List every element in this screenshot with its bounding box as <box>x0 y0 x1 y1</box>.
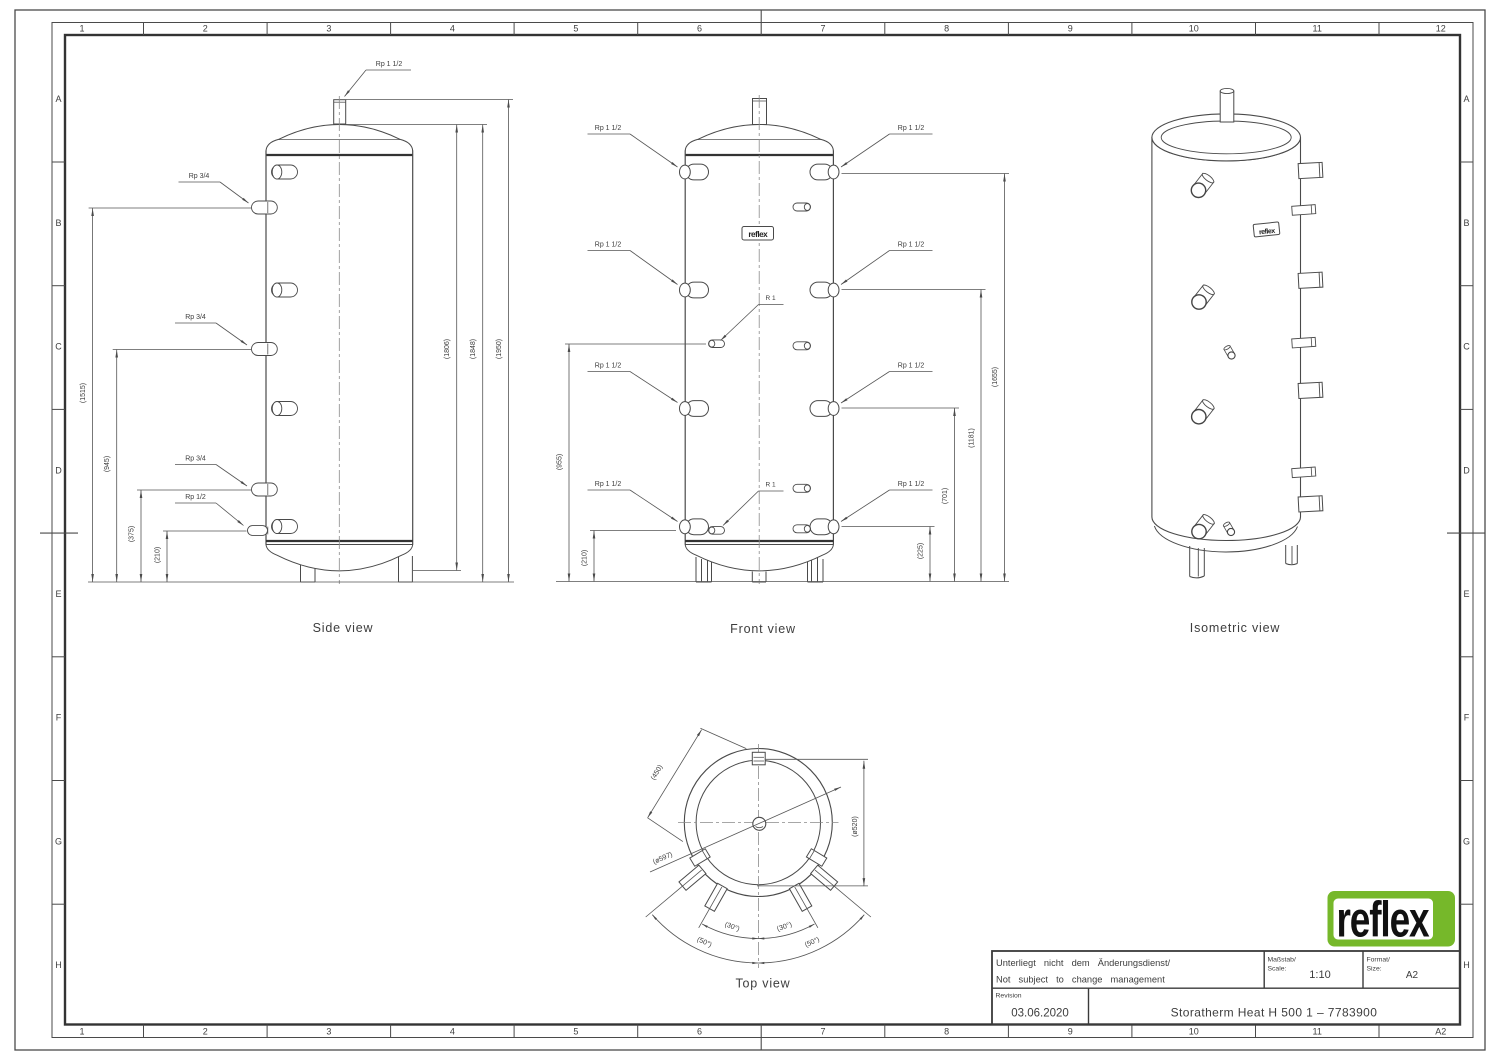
svg-text:C: C <box>55 342 62 352</box>
svg-text:03.06.2020: 03.06.2020 <box>1011 1008 1069 1020</box>
svg-text:Rp 1/2: Rp 1/2 <box>185 494 206 501</box>
svg-text:(1848): (1848) <box>470 339 477 359</box>
svg-text:2: 2 <box>203 1027 208 1037</box>
svg-text:Rp 1 1/2: Rp 1 1/2 <box>595 242 622 249</box>
svg-text:Rp 3/4: Rp 3/4 <box>185 456 206 463</box>
svg-text:6: 6 <box>697 24 702 34</box>
svg-text:4: 4 <box>450 24 455 34</box>
svg-text:11: 11 <box>1313 1027 1322 1037</box>
svg-text:reflex: reflex <box>1336 892 1430 948</box>
svg-text:(1950): (1950) <box>496 339 503 359</box>
svg-text:(1181): (1181) <box>969 428 976 448</box>
svg-text:Rp 3/4: Rp 3/4 <box>189 173 210 180</box>
svg-text:Rp 1 1/2: Rp 1 1/2 <box>898 481 925 488</box>
svg-text:Rp 3/4: Rp 3/4 <box>185 314 206 321</box>
svg-text:9: 9 <box>1068 24 1073 34</box>
svg-text:(210): (210) <box>155 547 162 563</box>
svg-text:B: B <box>1463 218 1469 228</box>
svg-text:H: H <box>1463 960 1470 970</box>
svg-text:8: 8 <box>944 1027 949 1037</box>
svg-text:11: 11 <box>1313 24 1322 34</box>
svg-text:7: 7 <box>820 24 825 34</box>
svg-text:D: D <box>55 465 62 475</box>
svg-text:H: H <box>55 960 62 970</box>
svg-text:F: F <box>1464 713 1470 723</box>
svg-text:A2: A2 <box>1435 1027 1446 1037</box>
svg-text:3: 3 <box>326 24 331 34</box>
svg-text:R 1: R 1 <box>765 482 776 489</box>
svg-text:Rp 1 1/2: Rp 1 1/2 <box>376 61 403 68</box>
svg-text:8: 8 <box>944 24 949 34</box>
svg-text:Maßstab/: Maßstab/ <box>1268 957 1296 964</box>
svg-text:(945): (945) <box>104 456 111 472</box>
svg-text:Format/: Format/ <box>1367 957 1391 964</box>
svg-text:Revision: Revision <box>996 993 1022 1000</box>
svg-text:(225): (225) <box>918 543 925 559</box>
svg-text:reflex: reflex <box>748 230 768 239</box>
svg-text:(1515): (1515) <box>80 383 87 403</box>
svg-text:(955): (955) <box>557 454 564 470</box>
svg-text:Side view: Side view <box>313 621 374 635</box>
svg-text:1:10: 1:10 <box>1309 969 1330 981</box>
svg-text:Rp 1 1/2: Rp 1 1/2 <box>595 125 622 132</box>
svg-text:9: 9 <box>1068 1027 1073 1037</box>
svg-text:Top view: Top view <box>735 977 790 991</box>
svg-text:Storatherm Heat H 500 1 –: Storatherm Heat H 500 1 – 7783900 <box>1171 1006 1378 1020</box>
svg-text:10: 10 <box>1189 1027 1199 1037</box>
svg-text:R 1: R 1 <box>765 295 776 302</box>
svg-text:Isometric view: Isometric view <box>1190 621 1281 635</box>
svg-text:A: A <box>1463 94 1469 104</box>
svg-text:12: 12 <box>1436 24 1446 34</box>
svg-text:(1806): (1806) <box>444 339 451 359</box>
svg-text:Scale:: Scale: <box>1268 966 1287 973</box>
svg-text:Not subject to change manageme: Not subject to change management <box>996 975 1165 985</box>
svg-text:7: 7 <box>820 1027 825 1037</box>
svg-text:F: F <box>56 713 62 723</box>
svg-text:Rp 1 1/2: Rp 1 1/2 <box>898 242 925 249</box>
svg-text:Front view: Front view <box>730 622 796 636</box>
svg-text:E: E <box>55 589 61 599</box>
svg-text:Size:: Size: <box>1367 966 1382 973</box>
svg-text:6: 6 <box>697 1027 702 1037</box>
svg-text:(701): (701) <box>942 488 949 504</box>
svg-text:Unterliegt nicht dem Änderungs: Unterliegt nicht dem Änderungsdienst/ <box>996 958 1171 968</box>
svg-text:5: 5 <box>573 1027 578 1037</box>
svg-text:1: 1 <box>79 24 84 34</box>
svg-text:Rp 1 1/2: Rp 1 1/2 <box>595 481 622 488</box>
svg-text:(ø520): (ø520) <box>852 816 859 837</box>
svg-text:(1655): (1655) <box>992 367 999 387</box>
svg-text:5: 5 <box>573 24 578 34</box>
svg-text:Rp 1 1/2: Rp 1 1/2 <box>595 363 622 370</box>
svg-text:G: G <box>55 836 62 846</box>
svg-text:E: E <box>1463 589 1469 599</box>
svg-text:4: 4 <box>450 1027 455 1037</box>
svg-text:D: D <box>1463 465 1470 475</box>
svg-text:(375): (375) <box>129 526 136 542</box>
svg-text:G: G <box>1463 836 1470 846</box>
svg-text:B: B <box>55 218 61 228</box>
svg-text:Rp 1 1/2: Rp 1 1/2 <box>898 363 925 370</box>
svg-text:2: 2 <box>203 24 208 34</box>
svg-text:A2: A2 <box>1406 970 1419 981</box>
svg-text:(210): (210) <box>582 550 589 566</box>
svg-text:Rp 1 1/2: Rp 1 1/2 <box>898 125 925 132</box>
svg-text:A: A <box>55 94 61 104</box>
svg-text:1: 1 <box>79 1027 84 1037</box>
svg-text:3: 3 <box>326 1027 331 1037</box>
svg-text:C: C <box>1463 342 1470 352</box>
svg-text:10: 10 <box>1189 24 1199 34</box>
